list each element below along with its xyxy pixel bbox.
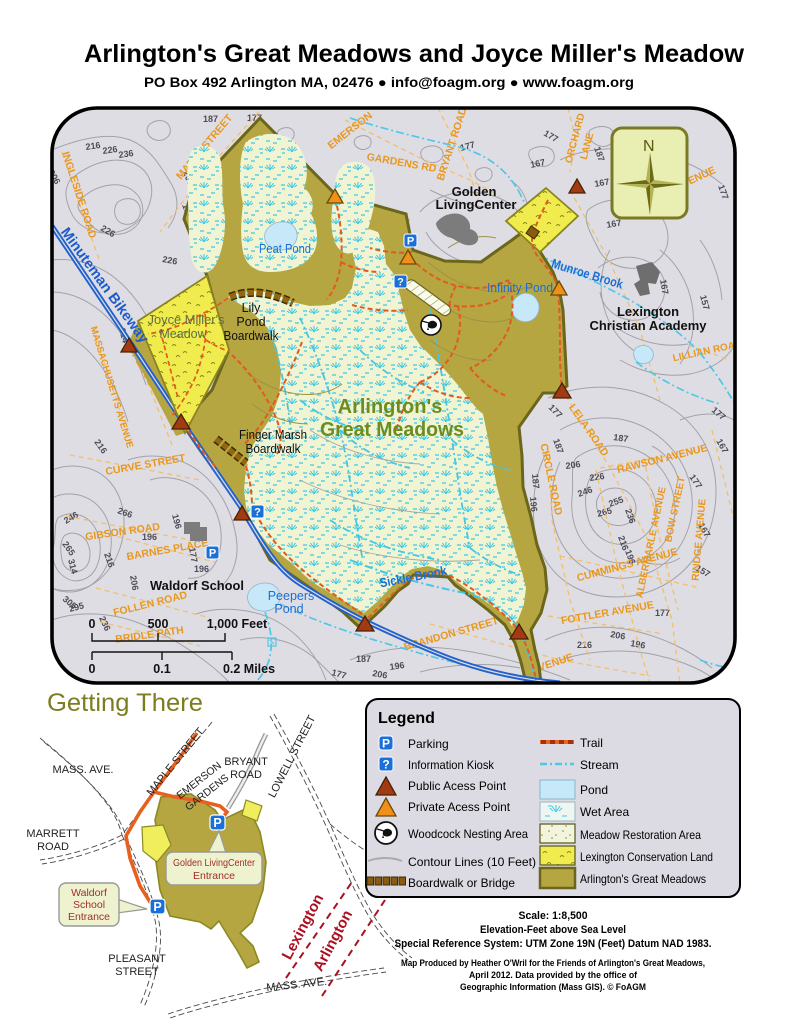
svg-text:Public Acess Point: Public Acess Point — [408, 779, 507, 793]
svg-text:N: N — [643, 138, 655, 155]
svg-text:Lily: Lily — [242, 301, 262, 315]
svg-text:187: 187 — [203, 114, 218, 124]
svg-text:216: 216 — [85, 140, 101, 152]
svg-text:Private Acess Point: Private Acess Point — [408, 800, 511, 814]
svg-text:?: ? — [397, 277, 404, 289]
svg-text:P: P — [209, 548, 216, 560]
svg-text:Great Meadows: Great Meadows — [320, 419, 464, 441]
svg-text:Finger Marsh: Finger Marsh — [239, 428, 307, 442]
svg-text:BRYANT: BRYANT — [224, 756, 268, 768]
svg-text:Entrance: Entrance — [68, 911, 110, 923]
svg-text:Pond: Pond — [236, 315, 265, 329]
svg-text:P: P — [382, 737, 390, 751]
svg-text:Trail: Trail — [580, 736, 603, 750]
svg-text:Arlington's Great Meadows: Arlington's Great Meadows — [580, 872, 706, 886]
svg-text:206: 206 — [565, 459, 581, 471]
svg-text:Map Produced by Heather O'Wril: Map Produced by Heather O'Wril for the F… — [401, 958, 705, 969]
svg-text:P: P — [213, 816, 221, 830]
svg-text:Legend: Legend — [378, 710, 435, 727]
svg-text:ROAD: ROAD — [230, 769, 262, 781]
svg-text:Peepers: Peepers — [268, 589, 315, 603]
svg-text:Entrance: Entrance — [193, 870, 235, 882]
svg-text:Waldorf: Waldorf — [71, 887, 107, 899]
svg-text:236: 236 — [118, 148, 134, 160]
svg-text:PO Box 492 Arlington MA, 0247: PO Box 492 Arlington MA, 02476 ● info@fo… — [144, 75, 634, 90]
svg-text:Special Reference System: UTM: Special Reference System: UTM Zone 19N (… — [395, 938, 712, 950]
svg-text:Meadow Restoration Area: Meadow Restoration Area — [580, 828, 701, 842]
svg-text:Parking: Parking — [408, 737, 449, 751]
svg-text:0.2 Miles: 0.2 Miles — [223, 662, 275, 676]
svg-text:Information Kiosk: Information Kiosk — [408, 758, 495, 772]
svg-text:Wet Area: Wet Area — [580, 805, 629, 819]
svg-text:School: School — [73, 899, 105, 911]
svg-text:Boardwalk or Bridge: Boardwalk or Bridge — [408, 876, 515, 890]
svg-text:P: P — [153, 900, 161, 914]
svg-text:187: 187 — [613, 432, 629, 444]
svg-text:Stream: Stream — [580, 758, 619, 772]
svg-text:Pond: Pond — [580, 783, 608, 797]
svg-text:Golden LivingCenter: Golden LivingCenter — [173, 858, 256, 869]
svg-text:500: 500 — [148, 617, 169, 631]
svg-text:177: 177 — [655, 608, 670, 618]
svg-text:Joyce Miller's: Joyce Miller's — [148, 313, 225, 327]
svg-text:0: 0 — [89, 662, 96, 676]
svg-text:196: 196 — [389, 660, 405, 672]
svg-text:Geographic Information (Mass G: Geographic Information (Mass GIS). © FoA… — [460, 982, 646, 993]
svg-text:Boardwalk: Boardwalk — [224, 329, 280, 343]
svg-text:196: 196 — [194, 564, 209, 574]
svg-text:0: 0 — [89, 617, 96, 631]
svg-text:STREET: STREET — [115, 966, 159, 978]
svg-text:P: P — [407, 236, 414, 248]
svg-text:MASS. AVE.: MASS. AVE. — [53, 764, 114, 776]
svg-text:Boardwalk: Boardwalk — [246, 442, 302, 456]
svg-text:Contour Lines (10 Feet): Contour Lines (10 Feet) — [408, 855, 536, 869]
svg-text:Waldorf School: Waldorf School — [150, 578, 244, 593]
svg-text:Arlington's: Arlington's — [338, 396, 443, 418]
svg-text:?: ? — [382, 758, 389, 772]
svg-text:Woodcock Nesting Area: Woodcock Nesting Area — [408, 827, 528, 841]
svg-text:0.1: 0.1 — [153, 662, 170, 676]
svg-text:Arlington's Great Meadows and: Arlington's Great Meadows and Joyce Mill… — [84, 40, 745, 68]
svg-text:Lexington: Lexington — [617, 304, 679, 319]
svg-text:1,000 Feet: 1,000 Feet — [207, 617, 268, 631]
svg-text:187: 187 — [356, 654, 371, 664]
svg-text:MARRETT: MARRETT — [26, 828, 79, 840]
svg-text:Getting There: Getting There — [47, 689, 203, 717]
svg-text:Christian Academy: Christian Academy — [590, 318, 708, 333]
svg-text:187: 187 — [530, 473, 541, 489]
svg-text:ROAD: ROAD — [37, 841, 69, 853]
svg-text:Peat Pond: Peat Pond — [259, 242, 311, 256]
svg-text:Meadow: Meadow — [159, 327, 207, 341]
svg-text:226: 226 — [102, 144, 118, 156]
svg-text:Scale: 1:8,500: Scale: 1:8,500 — [519, 910, 588, 922]
svg-text:LivingCenter: LivingCenter — [436, 197, 517, 212]
svg-text:April 2012. Data provided by t: April 2012. Data provided by the office … — [469, 970, 638, 981]
svg-text:Lexington Conservation Land: Lexington Conservation Land — [580, 850, 713, 864]
svg-text:Infinity Pond: Infinity Pond — [487, 281, 553, 295]
svg-text:Elevation-Feet above Sea Level: Elevation-Feet above Sea Level — [480, 924, 626, 936]
svg-text:PLEASANT: PLEASANT — [108, 953, 166, 965]
svg-text:?: ? — [254, 507, 261, 519]
svg-text:Pond: Pond — [274, 602, 303, 616]
